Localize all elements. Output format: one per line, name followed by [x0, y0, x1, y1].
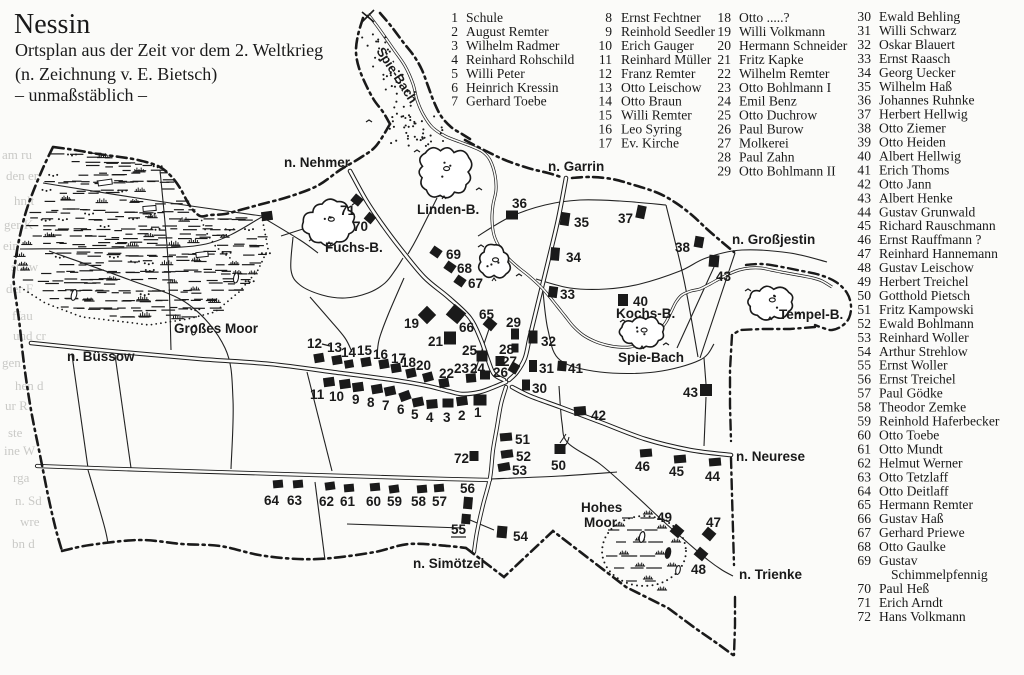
svg-text:Willi Peter: Willi Peter [466, 66, 525, 81]
svg-text:Gerhard Toebe: Gerhard Toebe [466, 94, 547, 109]
svg-text:6: 6 [451, 80, 458, 95]
svg-text:Paul Heß: Paul Heß [879, 581, 929, 596]
svg-text:Paul Zahn: Paul Zahn [739, 150, 795, 165]
svg-text:6: 6 [397, 402, 405, 417]
svg-text:Otto .....?: Otto .....? [739, 10, 790, 25]
svg-text:16: 16 [373, 347, 389, 362]
svg-text:Richard Rauschmann: Richard Rauschmann [879, 218, 996, 233]
svg-text:2: 2 [458, 408, 466, 423]
svg-text:Albert Henke: Albert Henke [879, 190, 953, 205]
svg-text:25: 25 [717, 108, 731, 123]
svg-text:ger K: ger K [4, 217, 34, 232]
svg-text:Reinhard Rohschild: Reinhard Rohschild [466, 52, 575, 67]
svg-text:5: 5 [411, 407, 419, 422]
svg-text:Franz Remter: Franz Remter [621, 66, 696, 81]
svg-text:26: 26 [717, 122, 731, 137]
svg-text:48: 48 [857, 260, 871, 275]
svg-text:n. Neurese: n. Neurese [736, 449, 806, 464]
svg-text:Erich Gauger: Erich Gauger [621, 38, 694, 53]
svg-text:Schule: Schule [466, 10, 503, 25]
svg-text:Gustav: Gustav [879, 553, 918, 568]
svg-text:19: 19 [404, 316, 419, 331]
svg-text:4: 4 [426, 410, 434, 425]
svg-text:27: 27 [717, 136, 731, 151]
svg-text:30: 30 [857, 9, 871, 24]
svg-text:ur R: ur R [5, 398, 28, 413]
svg-text:Ortsplan aus der Zeit vor dem: Ortsplan aus der Zeit vor dem 2. Weltkri… [15, 40, 323, 60]
svg-text:47: 47 [706, 515, 721, 530]
svg-text:46: 46 [635, 459, 651, 474]
svg-text:19: 19 [717, 24, 731, 39]
svg-text:Paul Burow: Paul Burow [739, 122, 804, 137]
svg-text:57: 57 [432, 494, 447, 509]
svg-text:– unmaßstäblich –: – unmaßstäblich – [14, 85, 148, 105]
svg-text:13: 13 [598, 80, 612, 95]
svg-text:Paul Gödke: Paul Gödke [879, 386, 943, 401]
svg-text:63: 63 [287, 493, 303, 508]
svg-text:65: 65 [479, 307, 495, 322]
svg-text:12: 12 [598, 66, 612, 81]
svg-text:n. Trienke: n. Trienke [739, 567, 803, 582]
svg-text:43: 43 [683, 385, 699, 400]
svg-text:15: 15 [598, 108, 612, 123]
svg-text:24: 24 [470, 361, 486, 376]
svg-text:Otto Bohlmann I: Otto Bohlmann I [739, 80, 832, 95]
svg-text:32: 32 [857, 37, 871, 52]
svg-text:Ernst Treichel: Ernst Treichel [879, 372, 956, 387]
svg-text:45: 45 [857, 218, 871, 233]
svg-text:Wilhelm Haß: Wilhelm Haß [879, 79, 952, 94]
svg-text:den er: den er [6, 168, 39, 183]
svg-text:22: 22 [717, 66, 731, 81]
svg-text:39: 39 [857, 135, 871, 150]
svg-text:22: 22 [439, 366, 454, 381]
svg-text:61: 61 [340, 494, 356, 509]
svg-text:Otto Tetzlaff: Otto Tetzlaff [879, 469, 949, 484]
svg-text:37: 37 [618, 211, 633, 226]
svg-text:51: 51 [857, 302, 871, 317]
svg-text:58: 58 [411, 494, 427, 509]
svg-text:Johannes Ruhnke: Johannes Ruhnke [879, 93, 975, 108]
svg-text:Wilhelm Radmer: Wilhelm Radmer [466, 38, 560, 53]
svg-text:10: 10 [598, 38, 612, 53]
svg-text:3: 3 [443, 410, 451, 425]
svg-text:56: 56 [460, 481, 476, 496]
svg-text:Hermann Remter: Hermann Remter [879, 497, 973, 512]
svg-text:Ewald Behling: Ewald Behling [879, 9, 960, 24]
svg-text:14: 14 [598, 94, 612, 109]
svg-text:Tempel-B.: Tempel-B. [779, 307, 843, 322]
svg-text:44: 44 [857, 204, 871, 219]
svg-text:72: 72 [857, 609, 871, 624]
svg-text:71: 71 [857, 595, 871, 610]
svg-text:und cr: und cr [13, 328, 47, 343]
svg-text:Theodor Zemke: Theodor Zemke [879, 400, 966, 415]
svg-text:41: 41 [568, 361, 584, 376]
svg-text:Otto Gaulke: Otto Gaulke [879, 539, 946, 554]
svg-text:46: 46 [857, 232, 871, 247]
svg-text:33: 33 [857, 51, 871, 66]
svg-text:23: 23 [454, 361, 470, 376]
svg-text:45: 45 [669, 464, 685, 479]
svg-text:63: 63 [857, 469, 871, 484]
svg-text:Herbert Hellwig: Herbert Hellwig [879, 107, 968, 122]
svg-text:56: 56 [857, 372, 871, 387]
svg-text:Otto Leischow: Otto Leischow [621, 80, 702, 95]
svg-text:Herbert Treichel: Herbert Treichel [879, 274, 969, 289]
svg-text:Ewald Bohlmann: Ewald Bohlmann [879, 316, 974, 331]
svg-text:Molkerei: Molkerei [739, 136, 789, 151]
svg-text:28: 28 [717, 150, 731, 165]
svg-text:66: 66 [857, 511, 871, 526]
svg-text:Willi Remter: Willi Remter [621, 108, 692, 123]
svg-text:4: 4 [451, 52, 458, 67]
svg-text:68: 68 [857, 539, 871, 554]
svg-text:20: 20 [416, 358, 431, 373]
svg-text:18: 18 [401, 355, 417, 370]
svg-text:Hermann Schneider: Hermann Schneider [739, 38, 848, 53]
svg-text:5: 5 [451, 66, 458, 81]
svg-text:51: 51 [515, 432, 531, 447]
svg-text:Ernst Raasch: Ernst Raasch [879, 51, 951, 66]
svg-text:8: 8 [605, 10, 612, 25]
svg-text:38: 38 [675, 240, 691, 255]
svg-text:35: 35 [857, 79, 871, 94]
svg-text:47: 47 [857, 246, 871, 261]
svg-text:rga: rga [13, 470, 30, 485]
svg-text:34: 34 [857, 65, 871, 80]
svg-text:Otto Jann: Otto Jann [879, 176, 932, 191]
svg-text:9: 9 [605, 24, 612, 39]
svg-text:62: 62 [319, 494, 334, 509]
svg-text:40: 40 [857, 149, 871, 164]
svg-text:30: 30 [532, 381, 547, 396]
svg-text:65: 65 [857, 497, 871, 512]
svg-text:49: 49 [857, 274, 871, 289]
svg-text:n. Simötzel: n. Simötzel [413, 556, 484, 571]
svg-text:48: 48 [691, 562, 707, 577]
svg-text:Ernst Rauffmann ?: Ernst Rauffmann ? [879, 232, 981, 247]
svg-text:59: 59 [857, 414, 871, 429]
svg-text:10: 10 [329, 389, 344, 404]
svg-text:36: 36 [512, 196, 528, 211]
svg-text:53: 53 [512, 463, 528, 478]
svg-text:1: 1 [474, 405, 482, 420]
svg-text:Fritz Kapke: Fritz Kapke [739, 52, 804, 67]
svg-text:Otto Ziemer: Otto Ziemer [879, 121, 946, 136]
svg-text:Otto Deitlaff: Otto Deitlaff [879, 483, 949, 498]
svg-text:54: 54 [857, 344, 871, 359]
svg-text:Spie-Bach: Spie-Bach [618, 350, 684, 365]
svg-text:Reinhard Woller: Reinhard Woller [879, 330, 969, 345]
svg-text:64: 64 [264, 493, 280, 508]
svg-text:Reinhold Haferbecker: Reinhold Haferbecker [879, 414, 1000, 429]
svg-text:52: 52 [857, 316, 871, 331]
svg-text:Gotthold Pietsch: Gotthold Pietsch [879, 288, 970, 303]
svg-text:n. Nehmer: n. Nehmer [284, 155, 351, 170]
svg-text:Schimmelpfennig: Schimmelpfennig [891, 567, 988, 582]
svg-text:11: 11 [599, 52, 612, 67]
svg-text:Erich Arndt: Erich Arndt [879, 595, 943, 610]
svg-text:37: 37 [857, 107, 871, 122]
svg-text:3: 3 [451, 38, 458, 53]
svg-text:1: 1 [451, 10, 458, 25]
svg-text:64: 64 [857, 483, 871, 498]
svg-text:15: 15 [357, 343, 373, 358]
svg-text:n. Großjestin: n. Großjestin [732, 232, 815, 247]
svg-text:Hohes: Hohes [581, 500, 622, 515]
svg-text:Linden-B.: Linden-B. [417, 202, 479, 217]
svg-text:33: 33 [560, 287, 576, 302]
svg-text:57: 57 [857, 386, 871, 401]
svg-text:Reinhard Müller: Reinhard Müller [621, 52, 712, 67]
svg-text:Moor: Moor [584, 515, 618, 530]
svg-text:70: 70 [857, 581, 871, 596]
svg-text:Erich Thoms: Erich Thoms [879, 162, 949, 177]
svg-text:34: 34 [566, 250, 582, 265]
svg-text:7: 7 [451, 94, 458, 109]
svg-text:50: 50 [857, 288, 871, 303]
svg-text:12: 12 [307, 336, 322, 351]
svg-text:38: 38 [857, 121, 871, 136]
svg-text:31: 31 [857, 23, 871, 38]
svg-text:Otto Duchrow: Otto Duchrow [739, 108, 817, 123]
svg-text:43: 43 [716, 269, 732, 284]
svg-text:Otto Braun: Otto Braun [621, 94, 682, 109]
svg-text:Otto Mundt: Otto Mundt [879, 441, 943, 456]
svg-text:55: 55 [451, 522, 467, 537]
svg-text:58: 58 [857, 400, 871, 415]
svg-text:23: 23 [717, 80, 731, 95]
svg-text:35: 35 [574, 215, 590, 230]
svg-text:11: 11 [310, 387, 325, 402]
svg-text:52: 52 [516, 449, 531, 464]
svg-text:61: 61 [857, 441, 871, 456]
svg-text:Großes Moor: Großes Moor [174, 321, 259, 336]
svg-text:66: 66 [459, 320, 475, 335]
svg-text:14: 14 [341, 345, 357, 360]
svg-text:69: 69 [857, 553, 871, 568]
svg-text:Ev. Kirche: Ev. Kirche [621, 136, 679, 151]
svg-text:9: 9 [352, 392, 360, 407]
svg-text:69: 69 [446, 247, 461, 262]
svg-text:55: 55 [857, 358, 871, 373]
svg-text:71: 71 [340, 203, 356, 218]
svg-text:62: 62 [857, 455, 871, 470]
svg-text:Kochs-B.: Kochs-B. [616, 306, 675, 321]
svg-text:21: 21 [717, 52, 731, 67]
svg-text:7: 7 [382, 398, 390, 413]
svg-text:Gerhard Priewe: Gerhard Priewe [879, 525, 965, 540]
svg-text:Willi Volkmann: Willi Volkmann [739, 24, 825, 39]
svg-text:Georg Uecker: Georg Uecker [879, 65, 956, 80]
svg-text:ine W: ine W [4, 443, 36, 458]
svg-text:Wilhelm Remter: Wilhelm Remter [739, 66, 830, 81]
svg-text:gen: gen [2, 355, 21, 370]
svg-text:n. Garrin: n. Garrin [548, 159, 604, 174]
svg-text:Helmut Werner: Helmut Werner [879, 455, 963, 470]
svg-text:53: 53 [857, 330, 871, 345]
svg-text:54: 54 [513, 529, 529, 544]
svg-text:49: 49 [657, 510, 672, 525]
svg-text:Albert Hellwig: Albert Hellwig [879, 149, 961, 164]
svg-text:Reinhard Hannemann: Reinhard Hannemann [879, 246, 998, 261]
svg-text:ste: ste [8, 425, 23, 440]
svg-text:Hans Volkmann: Hans Volkmann [879, 609, 966, 624]
svg-text:21: 21 [428, 334, 444, 349]
svg-text:n. Büssow: n. Büssow [67, 349, 135, 364]
svg-text:8: 8 [367, 395, 375, 410]
svg-text:42: 42 [591, 408, 606, 423]
svg-text:29: 29 [717, 163, 731, 178]
svg-text:Gustav Leischow: Gustav Leischow [879, 260, 974, 275]
svg-text:Ernst Woller: Ernst Woller [879, 358, 948, 373]
svg-text:32: 32 [541, 334, 556, 349]
svg-text:n. Sd: n. Sd [15, 493, 42, 508]
svg-text:Gustav Grunwald: Gustav Grunwald [879, 204, 975, 219]
svg-text:(n. Zeichnung v. E. Bietsch): (n. Zeichnung v. E. Bietsch) [15, 64, 217, 85]
svg-text:bn d: bn d [12, 536, 35, 551]
svg-text:36: 36 [857, 93, 871, 108]
svg-text:25: 25 [462, 343, 478, 358]
svg-text:42: 42 [857, 176, 871, 191]
svg-text:Reinhold Seedler: Reinhold Seedler [621, 24, 715, 39]
svg-text:Otto Bohlmann II: Otto Bohlmann II [739, 163, 836, 178]
svg-text:29: 29 [506, 315, 521, 330]
svg-text:50: 50 [551, 458, 566, 473]
svg-text:16: 16 [598, 122, 612, 137]
svg-text:Otto Toebe: Otto Toebe [879, 428, 939, 443]
svg-text:August Remter: August Remter [466, 24, 549, 39]
svg-text:17: 17 [598, 136, 612, 151]
svg-text:Fritz Kampowski: Fritz Kampowski [879, 302, 974, 317]
svg-text:24: 24 [717, 94, 731, 109]
svg-text:2: 2 [451, 24, 458, 39]
svg-text:Oskar Blauert: Oskar Blauert [879, 37, 955, 52]
svg-text:68: 68 [457, 261, 473, 276]
svg-text:41: 41 [857, 162, 871, 177]
svg-text:67: 67 [857, 525, 871, 540]
svg-text:60: 60 [857, 428, 871, 443]
svg-text:43: 43 [857, 190, 871, 205]
svg-text:Ernst Fechtner: Ernst Fechtner [621, 10, 701, 25]
svg-text:44: 44 [705, 469, 721, 484]
svg-text:60: 60 [366, 494, 381, 509]
svg-text:59: 59 [387, 494, 402, 509]
svg-text:Arthur Strehlow: Arthur Strehlow [879, 344, 968, 359]
svg-text:wre: wre [20, 514, 40, 529]
svg-text:20: 20 [717, 38, 731, 53]
svg-text:ffau: ffau [12, 308, 33, 323]
svg-text:am ru: am ru [2, 147, 32, 162]
svg-text:Fuchs-B.: Fuchs-B. [325, 240, 383, 255]
svg-text:Emil Benz: Emil Benz [739, 94, 797, 109]
svg-text:hen d: hen d [15, 378, 44, 393]
svg-text:67: 67 [468, 276, 483, 291]
svg-text:Willi Schwarz: Willi Schwarz [879, 23, 957, 38]
svg-text:70: 70 [353, 219, 368, 234]
svg-text:Leo Syring: Leo Syring [621, 122, 682, 137]
svg-text:31: 31 [539, 361, 555, 376]
svg-text:72: 72 [454, 451, 469, 466]
svg-text:18: 18 [717, 10, 731, 25]
svg-text:der F: der F [6, 281, 33, 296]
svg-text:Gustav Haß: Gustav Haß [879, 511, 944, 526]
svg-text:Heinrich Kressin: Heinrich Kressin [466, 80, 559, 95]
svg-text:Nessin: Nessin [14, 9, 90, 40]
svg-text:26: 26 [493, 365, 509, 380]
svg-text:Otto Heiden: Otto Heiden [879, 135, 946, 150]
